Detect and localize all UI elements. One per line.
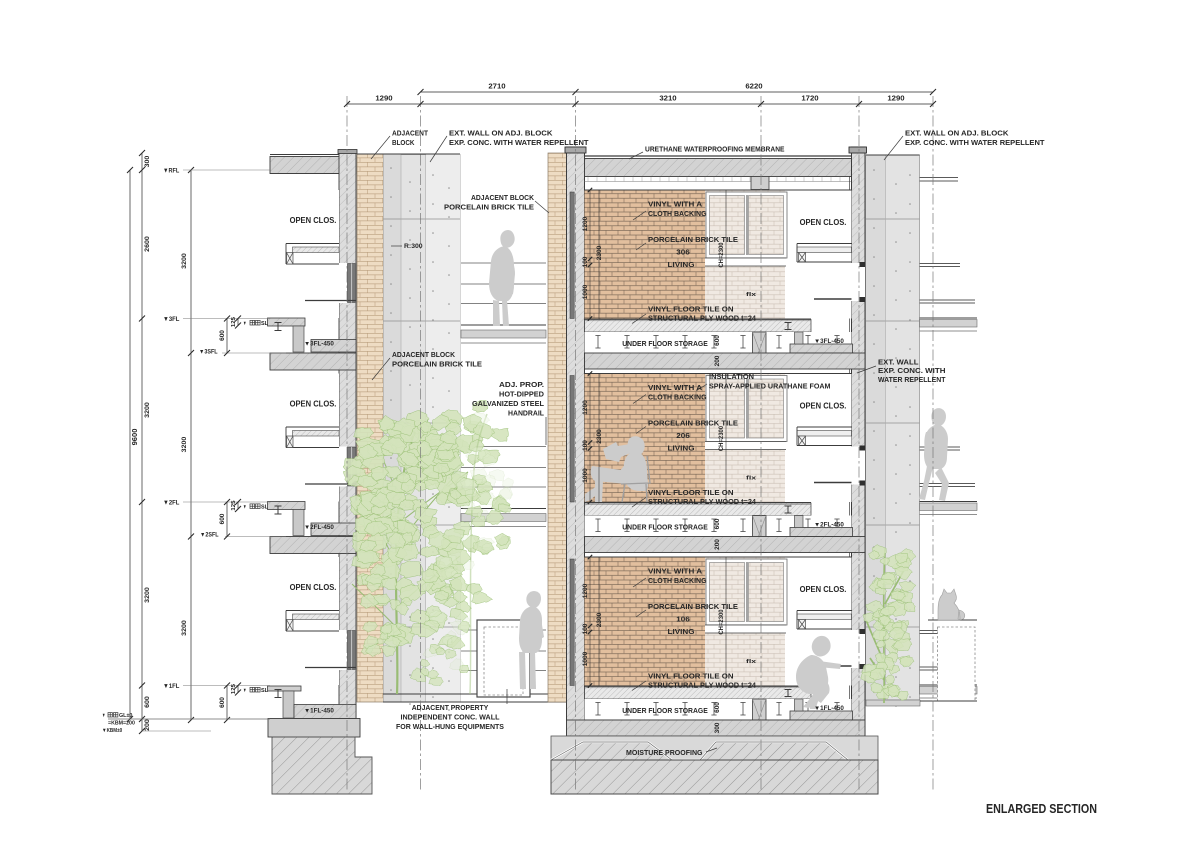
- svg-text:VINYL WITH A: VINYL WITH A: [648, 200, 703, 209]
- svg-text:600: 600: [715, 334, 721, 346]
- svg-text:STRUCTURAL PLY WOOD t=24: STRUCTURAL PLY WOOD t=24: [648, 497, 757, 506]
- svg-text:VINYL FLOOR TILE ON: VINYL FLOOR TILE ON: [648, 305, 734, 314]
- svg-text:EXP. CONC. WITH WATER REPELLEN: EXP. CONC. WITH WATER REPELLENT: [905, 138, 1045, 147]
- svg-text:1290: 1290: [887, 94, 904, 103]
- svg-text:HANDRAIL: HANDRAIL: [508, 409, 544, 418]
- svg-text:SL: SL: [261, 321, 268, 327]
- svg-text:INDEPENDENT CONC. WALL: INDEPENDENT CONC. WALL: [401, 713, 500, 722]
- svg-text:100: 100: [583, 256, 589, 268]
- svg-text:SL: SL: [261, 505, 268, 511]
- svg-text:▼1FL: ▼1FL: [163, 683, 179, 690]
- svg-text:MOISTURE PROOFING: MOISTURE PROOFING: [626, 748, 703, 757]
- svg-text:OPEN CLOS.: OPEN CLOS.: [290, 216, 337, 225]
- svg-text:ADJACENT BLOCK: ADJACENT BLOCK: [392, 350, 456, 359]
- svg-text:▼2SFL: ▼2SFL: [200, 532, 219, 539]
- svg-text:600: 600: [715, 701, 721, 713]
- svg-text:▼: ▼: [243, 505, 247, 511]
- svg-text:PORCELAIN BRICK TILE: PORCELAIN BRICK TILE: [392, 360, 482, 369]
- svg-text:flx: flx: [746, 476, 757, 482]
- svg-text:CH=2300: CH=2300: [719, 425, 725, 451]
- svg-text:9600: 9600: [132, 428, 139, 445]
- svg-text:UNDER FLOOR STORAGE: UNDER FLOOR STORAGE: [622, 523, 708, 532]
- svg-text:100: 100: [583, 623, 589, 635]
- svg-text:VINYL WITH A: VINYL WITH A: [648, 383, 703, 392]
- svg-text:EXP. CONC. WITH WATER REPELLEN: EXP. CONC. WITH WATER REPELLENT: [449, 138, 589, 147]
- svg-text:PORCELAIN BRICK TILE: PORCELAIN BRICK TILE: [444, 203, 534, 212]
- svg-text:ENLARGED SECTION: ENLARGED SECTION: [986, 802, 1097, 816]
- svg-text:VINYL FLOOR TILE ON: VINYL FLOOR TILE ON: [648, 672, 734, 681]
- svg-text:600: 600: [220, 329, 226, 341]
- svg-text:▼3FL-450: ▼3FL-450: [814, 338, 844, 345]
- svg-text:EXT. WALL: EXT. WALL: [878, 358, 919, 367]
- svg-text:2600: 2600: [144, 236, 151, 252]
- svg-text:VINYL WITH A: VINYL WITH A: [648, 567, 703, 576]
- svg-text:1200: 1200: [583, 400, 589, 415]
- svg-text:▼1FL-450: ▼1FL-450: [814, 705, 844, 712]
- svg-text:GL±0: GL±0: [119, 713, 132, 719]
- svg-text:CH=2300: CH=2300: [719, 242, 725, 268]
- svg-text:▼3FL-450: ▼3FL-450: [304, 341, 334, 348]
- svg-text:GALVANIZED STEEL: GALVANIZED STEEL: [472, 399, 544, 408]
- svg-text:LIVING: LIVING: [668, 444, 695, 453]
- svg-text:2710: 2710: [488, 82, 505, 91]
- svg-text:CLOTH BACKING: CLOTH BACKING: [648, 209, 707, 218]
- svg-text:CLOTH BACKING: CLOTH BACKING: [648, 576, 707, 585]
- svg-text:106: 106: [676, 615, 690, 624]
- svg-text:flx: flx: [746, 659, 757, 665]
- svg-text:OPEN CLOS.: OPEN CLOS.: [290, 400, 337, 409]
- svg-text:2300: 2300: [597, 429, 603, 444]
- svg-text:BLOCK: BLOCK: [392, 138, 415, 147]
- svg-text:EXT. WALL ON ADJ. BLOCK: EXT. WALL ON ADJ. BLOCK: [905, 129, 1009, 138]
- svg-text:300: 300: [144, 155, 151, 167]
- svg-text:ADJACENT BLOCK: ADJACENT BLOCK: [471, 193, 535, 202]
- svg-text:125: 125: [231, 317, 237, 327]
- svg-text:3210: 3210: [659, 94, 676, 103]
- svg-text:EXT. WALL ON ADJ. BLOCK: EXT. WALL ON ADJ. BLOCK: [449, 129, 553, 138]
- svg-text:ADJ. PROP.: ADJ. PROP.: [499, 380, 544, 389]
- svg-text:3200: 3200: [181, 253, 188, 269]
- svg-text:ADJACENT: ADJACENT: [392, 129, 428, 138]
- svg-text:206: 206: [676, 431, 690, 440]
- svg-text:▼: ▼: [243, 688, 247, 694]
- svg-text:200: 200: [144, 719, 151, 731]
- svg-text:UNDER FLOOR STORAGE: UNDER FLOOR STORAGE: [622, 706, 708, 715]
- svg-text:UNDER FLOOR STORAGE: UNDER FLOOR STORAGE: [622, 339, 708, 348]
- svg-text:1200: 1200: [583, 216, 589, 231]
- svg-text:1000: 1000: [583, 651, 589, 666]
- svg-text:HOT-DIPPED: HOT-DIPPED: [499, 390, 545, 399]
- svg-text:flx: flx: [746, 292, 757, 298]
- svg-text:200: 200: [715, 355, 721, 367]
- svg-text:600: 600: [715, 518, 721, 530]
- svg-text:▼RFL: ▼RFL: [163, 168, 179, 175]
- svg-text:1000: 1000: [583, 468, 589, 483]
- svg-text:3200: 3200: [181, 436, 188, 452]
- svg-text:STRUCTURAL PLY WOOD t=24: STRUCTURAL PLY WOOD t=24: [648, 681, 757, 690]
- svg-text:CLOTH BACKING: CLOTH BACKING: [648, 393, 707, 402]
- svg-text:600: 600: [220, 513, 226, 525]
- svg-text:▼: ▼: [243, 321, 247, 327]
- svg-text:EXP. CONC. WITH: EXP. CONC. WITH: [878, 366, 946, 375]
- svg-text:R:300: R:300: [404, 243, 423, 250]
- svg-text:INSULATION: INSULATION: [709, 372, 754, 381]
- svg-text:▼2FL: ▼2FL: [163, 500, 179, 507]
- svg-text:SL: SL: [261, 688, 268, 694]
- svg-text:FOR WALL-HUNG EQUIPMENTS: FOR WALL-HUNG EQUIPMENTS: [396, 722, 504, 731]
- svg-text:2300: 2300: [597, 245, 603, 260]
- svg-text:▼3FL: ▼3FL: [163, 316, 179, 323]
- svg-text:1290: 1290: [375, 94, 392, 103]
- svg-text:SPRAY-APPLIED URATHANE FOAM: SPRAY-APPLIED URATHANE FOAM: [709, 382, 831, 391]
- svg-text:▼1FL-450: ▼1FL-450: [304, 708, 334, 715]
- svg-text:WATER REPELLENT: WATER REPELLENT: [878, 375, 946, 384]
- svg-text:ADJACENT PROPERTY: ADJACENT PROPERTY: [412, 703, 489, 712]
- svg-text:3200: 3200: [181, 620, 188, 636]
- svg-text:300: 300: [715, 722, 721, 734]
- svg-text:▼: ▼: [102, 713, 105, 719]
- svg-text:3200: 3200: [144, 402, 151, 418]
- svg-text:100: 100: [583, 439, 589, 451]
- svg-text:LIVING: LIVING: [668, 627, 695, 636]
- svg-text:600: 600: [220, 696, 226, 708]
- svg-text:CH=2300: CH=2300: [719, 609, 725, 635]
- svg-text:OPEN CLOS.: OPEN CLOS.: [800, 585, 847, 594]
- svg-text:125: 125: [231, 684, 237, 694]
- svg-text:3200: 3200: [144, 587, 151, 603]
- svg-text:306: 306: [676, 248, 690, 257]
- svg-text:2300: 2300: [597, 612, 603, 627]
- svg-text:200: 200: [715, 538, 721, 550]
- svg-text:=KBM=200: =KBM=200: [108, 721, 135, 727]
- svg-text:6220: 6220: [745, 82, 762, 91]
- svg-text:▼2FL-450: ▼2FL-450: [814, 522, 844, 529]
- svg-text:OPEN CLOS.: OPEN CLOS.: [800, 402, 847, 411]
- svg-text:1720: 1720: [801, 94, 818, 103]
- svg-text:STRUCTURAL PLY WOOD t=24: STRUCTURAL PLY WOOD t=24: [648, 314, 757, 323]
- svg-text:▼3SFL: ▼3SFL: [199, 349, 218, 356]
- svg-text:VINYL FLOOR TILE ON: VINYL FLOOR TILE ON: [648, 488, 734, 497]
- svg-text:▼KBM±0: ▼KBM±0: [102, 728, 122, 734]
- svg-text:▼2FL-450: ▼2FL-450: [304, 524, 334, 531]
- svg-text:125: 125: [231, 500, 237, 510]
- svg-text:600: 600: [144, 696, 151, 708]
- svg-text:OPEN CLOS.: OPEN CLOS.: [290, 583, 337, 592]
- svg-text:1000: 1000: [583, 284, 589, 299]
- svg-text:1200: 1200: [583, 583, 589, 598]
- svg-text:OPEN CLOS.: OPEN CLOS.: [800, 218, 847, 227]
- svg-text:LIVING: LIVING: [668, 260, 695, 269]
- svg-text:URETHANE WATERPROOFING MEMBRAN: URETHANE WATERPROOFING MEMBRANE: [645, 145, 785, 154]
